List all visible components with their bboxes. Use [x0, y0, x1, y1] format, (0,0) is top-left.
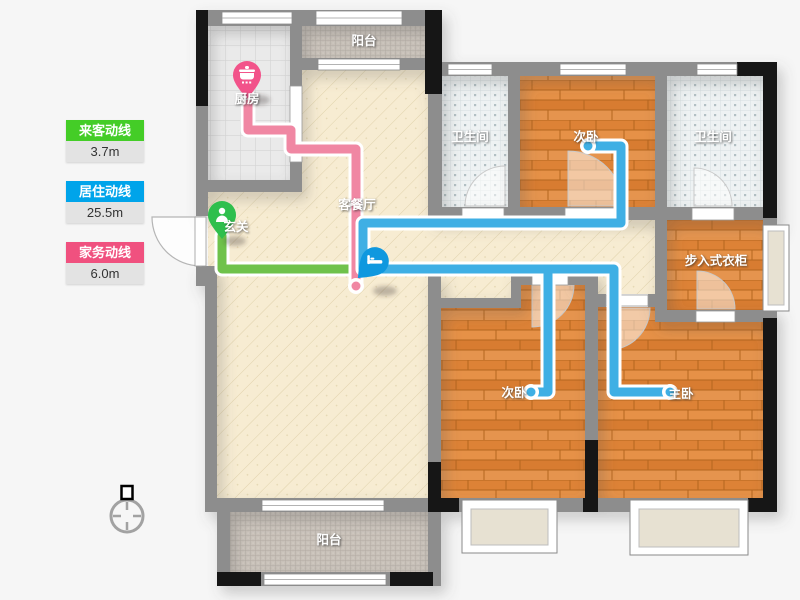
- legend-housework-label[interactable]: 家务动线: [66, 242, 144, 263]
- route-legend: 来客动线 3.7m 居住动线 25.5m 家务动线 6.0m: [66, 120, 144, 303]
- legend-living-value: 25.5m: [66, 202, 144, 223]
- legend-visitor-label[interactable]: 来客动线: [66, 120, 144, 141]
- living-notch-floor: [441, 275, 511, 298]
- legend-visitor-value: 3.7m: [66, 141, 144, 162]
- compass-north-box: [122, 486, 133, 499]
- room-label-bathroom-left: 卫生间: [451, 129, 489, 144]
- room-label-bedroom-top: 次卧: [573, 129, 599, 144]
- legend-item-living[interactable]: 居住动线 25.5m: [66, 181, 144, 223]
- room-label-entry: 玄关: [223, 219, 249, 234]
- legend-item-housework[interactable]: 家务动线 6.0m: [66, 242, 144, 284]
- bay-window-right: [630, 500, 748, 555]
- room-label-bathroom-right: 卫生间: [694, 129, 732, 144]
- bay-window-left: [462, 500, 557, 553]
- room-label-kitchen: 厨房: [234, 91, 259, 106]
- legend-living-label[interactable]: 居住动线: [66, 181, 144, 202]
- legend-housework-value: 6.0m: [66, 263, 144, 284]
- bay-window-closet: [763, 225, 789, 311]
- room-label-bedroom-master: 主卧: [668, 386, 694, 401]
- room-label-living: 客餐厅: [337, 197, 376, 212]
- legend-item-visitor[interactable]: 来客动线 3.7m: [66, 120, 144, 162]
- room-label-balcony-top: 阳台: [351, 33, 376, 48]
- room-label-bedroom-second: 次卧: [501, 385, 527, 400]
- floorplan-canvas: 厨房 阳台 卫生间 次卧 卫生间 客餐厅 玄关 步入式衣柜 次卧 主卧 阳台 来…: [0, 0, 800, 600]
- room-label-closet: 步入式衣柜: [685, 253, 748, 268]
- room-label-balcony-bottom: 阳台: [316, 532, 341, 547]
